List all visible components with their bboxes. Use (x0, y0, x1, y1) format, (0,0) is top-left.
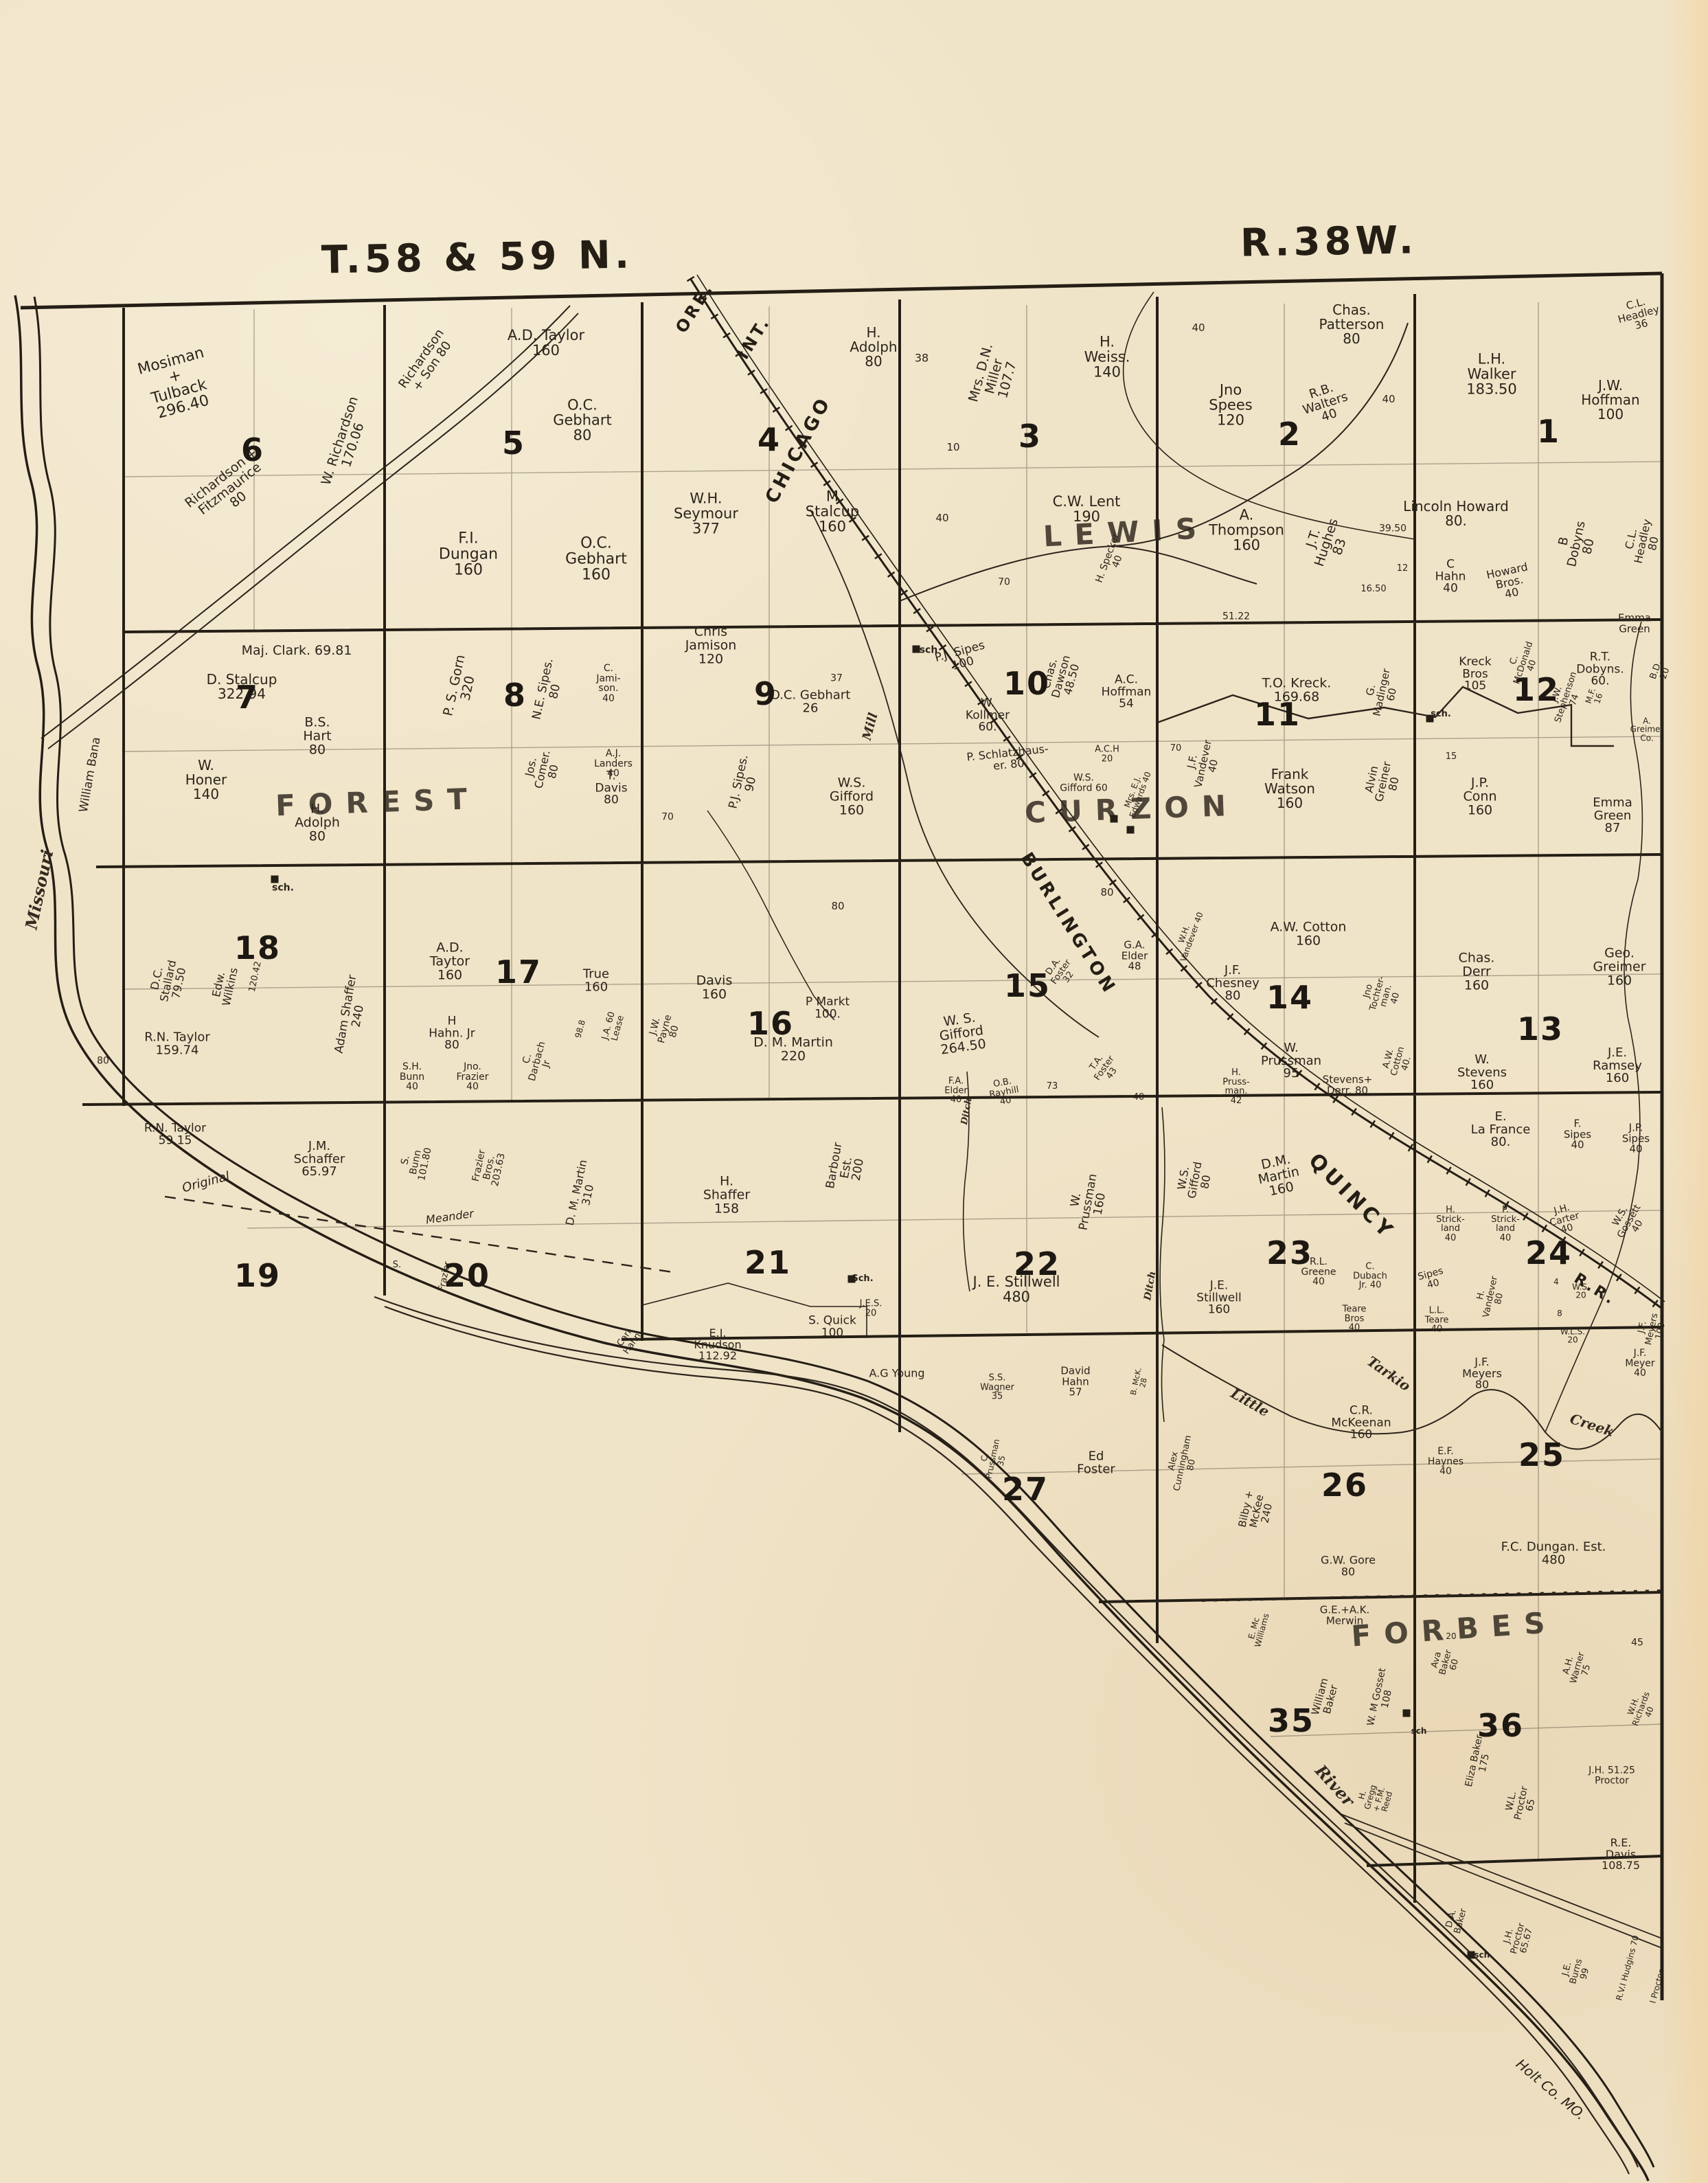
owner-label: C Hahn 40 (1435, 558, 1466, 595)
road-section6 (41, 306, 578, 749)
owner-label: 39.50 (1379, 524, 1407, 534)
owner-label: 73 (1047, 1082, 1058, 1091)
owner-label: A.G Young (869, 1368, 924, 1380)
owner-label: D.M. Martin 160 (1254, 1152, 1303, 1201)
owner-label: J.F. Meyer 40 (1625, 1348, 1654, 1379)
river-road (374, 1297, 1638, 2167)
owner-label: P Markt 100. (806, 996, 850, 1020)
owner-label: 45 (1631, 1638, 1643, 1649)
owner-label: R.E. Davis 108.75 (1602, 1837, 1640, 1872)
section-number: 16 (747, 1005, 794, 1042)
owner-label: 4 (1553, 1278, 1559, 1286)
owner-label: C.R. McKeenan 160 (1331, 1405, 1391, 1441)
owner-label: Davis 160 (696, 974, 733, 1002)
owner-label: Maj. Clark. 69.81 (242, 644, 352, 658)
owner-label: J.P. Conn 160 (1464, 776, 1497, 817)
owner-label: A. Greimer Co. (1630, 716, 1664, 742)
section-number: 21 (744, 1244, 791, 1281)
owner-label: Chas. Patterson 80 (1319, 303, 1385, 346)
owner-label: 16.50 (1360, 585, 1386, 594)
section-number: 5 (502, 425, 525, 462)
place-label: LEWIS (1043, 513, 1210, 552)
owner-label: C. Jami- son. 40 (596, 664, 620, 703)
owner-label: J.H. 51.25 Proctor (1589, 1765, 1635, 1785)
owner-label: E. La France 80. (1471, 1111, 1531, 1149)
section-number: 22 (1014, 1245, 1060, 1282)
owner-label: O.C. Gebhart 80 (553, 398, 612, 442)
section-number: 27 (1002, 1471, 1049, 1508)
owner-label: Stevens+ Derr. 80 (1323, 1074, 1373, 1096)
owner-label: A.D. Taylor 160 (508, 328, 584, 359)
section-number: 1 (1537, 413, 1560, 450)
owner-label: Chris Jamison 120 (685, 625, 737, 666)
section-number: 18 (234, 929, 281, 966)
school-label: sch. (272, 883, 294, 894)
owner-label: Teare Bros 40 (1343, 1305, 1367, 1333)
section-number: 14 (1266, 979, 1313, 1016)
school-marker-icon (848, 1276, 856, 1283)
owner-label: R.N. Taylor 59.15 (144, 1122, 206, 1146)
school-label: sch (1411, 1727, 1427, 1735)
place-label: FOREST (275, 784, 480, 821)
owner-label: W. Honer 140 (185, 758, 227, 801)
owner-label: 37 (830, 674, 843, 684)
owner-label: Emma Green 87 (1593, 797, 1632, 835)
owner-label: J.W. Hoffman 100 (1581, 378, 1639, 421)
owner-label: W. S. Gifford 264.50 (936, 1010, 987, 1057)
owner-label: 80 (97, 1056, 109, 1067)
owner-label: Lincoln Howard 80. (1403, 499, 1509, 528)
owner-label: G.A. Elder 48 (1121, 940, 1148, 973)
owner-label: 70 (661, 813, 674, 823)
owner-label: Ed Foster (1077, 1450, 1115, 1475)
owner-label: W. Kollmer 60. (966, 697, 1010, 734)
owner-label: 80 (831, 901, 844, 912)
section-number: 2 (1278, 416, 1301, 453)
school-marker-icon (1127, 826, 1135, 834)
owner-label: W. Prussman 95 (1261, 1042, 1321, 1081)
owner-label: H Hahn. Jr 80 (429, 1015, 475, 1052)
school-label: sch. (1431, 710, 1451, 719)
section-number: 36 (1477, 1707, 1524, 1744)
owner-label: W.L.S. 20 (1560, 1328, 1585, 1345)
owner-label: J.F. Chesney 80 (1206, 964, 1260, 1003)
owner-label: G.W. Gore 80 (1321, 1554, 1376, 1577)
section-number: 10 (1003, 665, 1050, 702)
owner-label: S. Quick 100 (808, 1315, 856, 1339)
school-marker-icon (1403, 1710, 1411, 1717)
owner-label: L.L. Teare 40 (1425, 1307, 1449, 1335)
owner-label: Jno. Frazier 40 (457, 1062, 489, 1092)
owner-label: H. Adolph 80 (850, 326, 897, 368)
school-marker-icon (1468, 1952, 1475, 1959)
owner-label: J.F. Meyers 80 (1462, 1357, 1502, 1391)
school-label: sch. (1474, 1951, 1492, 1959)
owner-label: Frank Watson 160 (1264, 767, 1315, 810)
owner-label: H. Shaffer 158 (703, 1175, 750, 1215)
section-number: 25 (1518, 1436, 1565, 1473)
owner-label: 15 (1446, 752, 1457, 762)
owner-label: W.S. Gifford 80 (1175, 1159, 1216, 1201)
missouri-river-bank-west (15, 295, 1648, 2181)
section-number: 9 (754, 675, 777, 712)
owner-label: True 160 (583, 968, 609, 993)
owner-label: C. Dubach Jr. 40 (1353, 1263, 1387, 1291)
owner-label: 12 (1397, 564, 1409, 574)
owner-label: W.S. Gifford 60 (1060, 773, 1108, 793)
owner-label: W.H. Seymour 377 (674, 491, 738, 536)
owner-label: H. Strick- land 40 (1436, 1206, 1465, 1243)
owner-label: E.J. Knudson 112.92 (694, 1328, 741, 1362)
owner-label: P. Strick- land 40 (1491, 1206, 1520, 1243)
owner-label: H. Weiss. 140 (1084, 335, 1130, 379)
owner-label: T. Davis 80 (595, 770, 627, 806)
owner-label: B.S. Hart 80 (303, 716, 331, 756)
section-number: 12 (1513, 671, 1560, 708)
section-number: 13 (1517, 1010, 1564, 1048)
owner-label: J.M. Schaffer 65.97 (294, 1140, 345, 1179)
section-number: 17 (495, 953, 542, 991)
owner-label: L.H. Walker 183.50 (1466, 352, 1516, 396)
owner-label: E.F. Haynes 40 (1428, 1447, 1464, 1477)
owner-label: G.E.+A.K. Merwin (1320, 1605, 1370, 1626)
owner-label: A.D. Taytor 160 (430, 941, 470, 982)
section-number: 6 (241, 431, 264, 468)
place-label: CURZON (1024, 791, 1239, 828)
section-number: 20 (444, 1257, 490, 1294)
section-number: 15 (1004, 967, 1051, 1004)
owner-label: S. (393, 1260, 401, 1270)
owner-label: A. Thompson 160 (1209, 508, 1284, 552)
owner-label: A.C. Hoffman 54 (1102, 674, 1152, 710)
owner-label: Kreck Bros 105 (1459, 656, 1491, 692)
owner-label: 70 (998, 578, 1010, 588)
owner-label: J.E. Stillwell 160 (1196, 1280, 1241, 1316)
owner-label: W. Stevens 160 (1457, 1054, 1507, 1092)
owner-label: 40 (1133, 1093, 1145, 1102)
owner-label: 40 (1382, 394, 1395, 405)
missouri-river-bank-east (34, 297, 1654, 2167)
owner-label: O.C. Gebhart 26 (771, 689, 851, 714)
river-road-2 (385, 1307, 1629, 2174)
owner-label: 10 (946, 442, 959, 453)
section-number: 23 (1266, 1234, 1313, 1271)
section-number: 3 (1018, 418, 1042, 455)
owner-label: 40 (1192, 323, 1205, 334)
owner-label: 38 (915, 353, 929, 365)
section-number: 35 (1268, 1702, 1314, 1739)
school-marker-icon (271, 876, 279, 883)
owner-label: J.E. Ramsey 160 (1593, 1047, 1642, 1085)
section-number: 7 (236, 679, 259, 716)
owner-label: Chas. Derr 160 (1459, 951, 1495, 992)
owner-label: S.S. Wagner 35 (980, 1374, 1014, 1402)
school-marker-icon (1111, 815, 1118, 823)
owner-label: O.C. Gebhart 160 (565, 536, 627, 584)
owner-label: W.S. Gifford 160 (830, 776, 874, 817)
owner-label: J.E.S. 20 (860, 1299, 883, 1317)
owner-label: O.B. Rayhill 40 (987, 1076, 1021, 1108)
section-number: 8 (503, 677, 527, 714)
owner-label: 51.22 (1222, 612, 1250, 622)
owner-label: Emma Green (1618, 613, 1651, 634)
section-number: 4 (758, 421, 781, 458)
section-number: 11 (1254, 696, 1301, 733)
owner-label: 80 (1100, 887, 1113, 898)
section-number: 24 (1525, 1234, 1572, 1271)
owner-label: David Hahn 57 (1060, 1366, 1090, 1399)
owner-label: 40 (935, 513, 948, 524)
owner-label: J.P. Sipes 40 (1622, 1123, 1650, 1155)
owner-label: Jno Spees 120 (1209, 383, 1252, 427)
owner-label: F.I. Dungan 160 (439, 532, 498, 579)
school-marker-icon (913, 646, 920, 653)
section-number: 19 (234, 1257, 281, 1294)
owner-label: F. Sipes 40 (1564, 1119, 1591, 1151)
owner-label: R.N. Taylor 159.74 (144, 1031, 210, 1056)
owner-label: F.C. Dungan. Est. 480 (1501, 1541, 1606, 1566)
owner-label: 8 (1557, 1309, 1562, 1317)
owner-label: Geo. Greimer 160 (1593, 947, 1646, 987)
owner-label: 70 (1170, 744, 1182, 754)
owner-label: 20 (1446, 1632, 1456, 1640)
section-number: 26 (1321, 1467, 1368, 1504)
owner-label: M Stalcup 160 (806, 489, 859, 534)
plat-map-page: T.58 & 59 N. R.38W. (0, 0, 1708, 2183)
owner-label: A.W. Cotton 160 (1271, 920, 1347, 948)
owner-label: S.H. Bunn 40 (400, 1062, 424, 1092)
owner-label: A.C.H 20 (1095, 745, 1119, 763)
owner-label: H. Pruss- man. 42 (1222, 1068, 1249, 1105)
school-marker-icon (1426, 715, 1434, 723)
